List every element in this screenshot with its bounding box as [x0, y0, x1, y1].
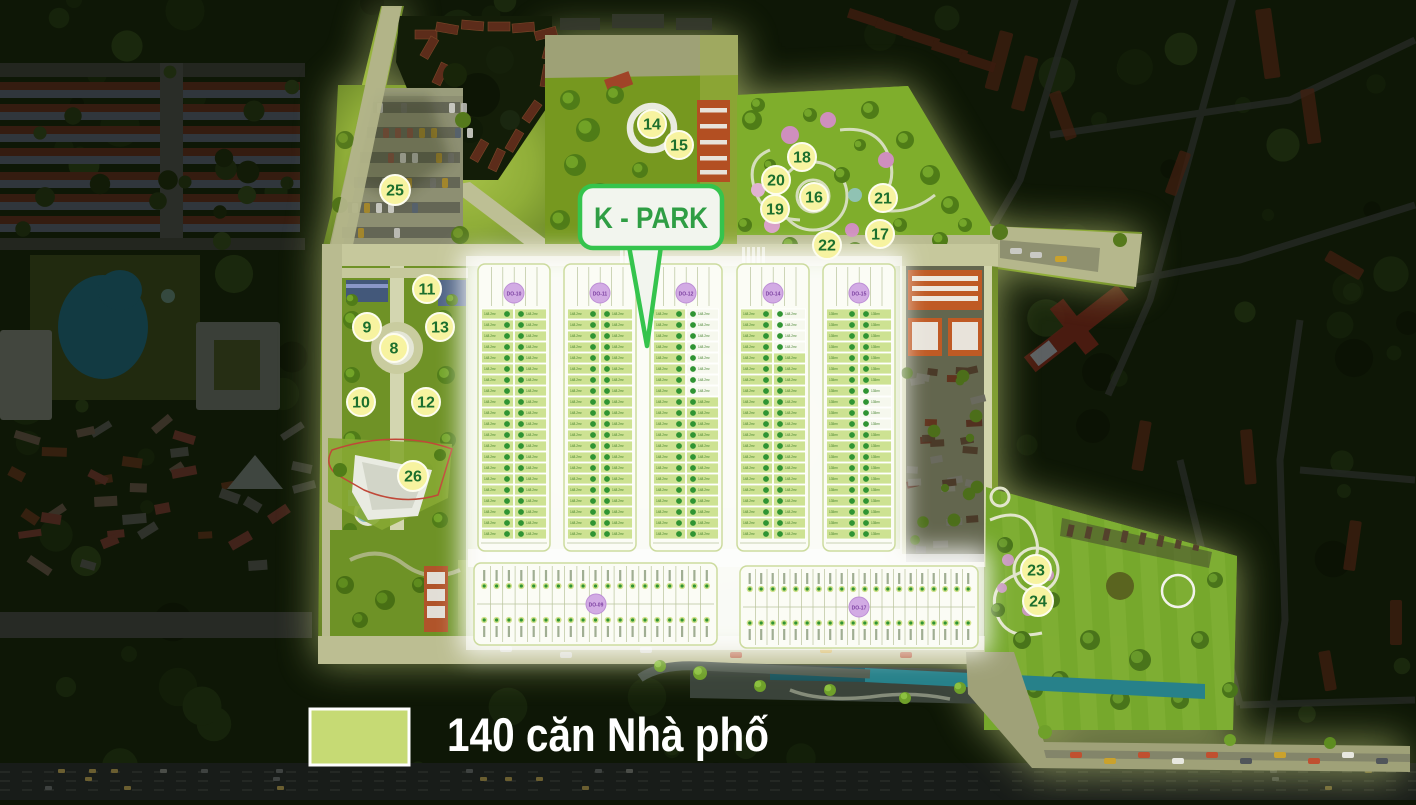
svg-text:148.2m²: 148.2m² — [612, 378, 624, 382]
svg-text:15: 15 — [670, 138, 688, 155]
svg-text:11: 11 — [419, 282, 436, 299]
svg-text:148.2m²: 148.2m² — [743, 400, 755, 404]
svg-text:135m²: 135m² — [871, 345, 880, 349]
svg-text:148.2m²: 148.2m² — [570, 323, 582, 327]
svg-text:148.2m²: 148.2m² — [526, 444, 538, 448]
svg-text:135m²: 135m² — [829, 323, 838, 327]
svg-text:148.2m²: 148.2m² — [612, 411, 624, 415]
svg-text:148.2m²: 148.2m² — [656, 444, 668, 448]
svg-text:135m²: 135m² — [871, 510, 880, 514]
svg-text:148.2m²: 148.2m² — [698, 532, 710, 536]
svg-text:148.2m²: 148.2m² — [612, 433, 624, 437]
svg-text:148.2m²: 148.2m² — [526, 433, 538, 437]
svg-text:148.2m²: 148.2m² — [785, 444, 797, 448]
svg-text:135m²: 135m² — [871, 444, 880, 448]
svg-text:148.2m²: 148.2m² — [570, 334, 582, 338]
svg-text:148.2m²: 148.2m² — [698, 422, 710, 426]
svg-text:148.2m²: 148.2m² — [698, 367, 710, 371]
svg-text:148.2m²: 148.2m² — [698, 312, 710, 316]
svg-text:148.2m²: 148.2m² — [570, 345, 582, 349]
svg-text:135m²: 135m² — [829, 312, 838, 316]
svg-text:148.2m²: 148.2m² — [484, 488, 496, 492]
svg-text:148.2m²: 148.2m² — [570, 378, 582, 382]
svg-text:135m²: 135m² — [829, 345, 838, 349]
svg-text:148.2m²: 148.2m² — [612, 334, 624, 338]
svg-text:148.2m²: 148.2m² — [743, 477, 755, 481]
svg-text:148.2m²: 148.2m² — [612, 455, 624, 459]
svg-text:DO-11: DO-11 — [593, 292, 608, 298]
svg-text:148.2m²: 148.2m² — [743, 444, 755, 448]
svg-text:135m²: 135m² — [871, 400, 880, 404]
svg-text:148.2m²: 148.2m² — [570, 521, 582, 525]
svg-text:DO-09: DO-09 — [589, 603, 604, 609]
svg-text:148.2m²: 148.2m² — [743, 466, 755, 470]
svg-text:135m²: 135m² — [829, 367, 838, 371]
svg-text:135m²: 135m² — [829, 510, 838, 514]
svg-text:148.2m²: 148.2m² — [743, 433, 755, 437]
svg-text:148.2m²: 148.2m² — [698, 345, 710, 349]
svg-text:148.2m²: 148.2m² — [785, 466, 797, 470]
svg-text:148.2m²: 148.2m² — [698, 356, 710, 360]
svg-text:148.2m²: 148.2m² — [570, 477, 582, 481]
svg-text:9: 9 — [363, 320, 372, 337]
svg-text:135m²: 135m² — [829, 422, 838, 426]
svg-text:DO-17: DO-17 — [852, 606, 867, 612]
svg-text:148.2m²: 148.2m² — [656, 488, 668, 492]
svg-text:148.2m²: 148.2m² — [698, 389, 710, 393]
svg-text:148.2m²: 148.2m² — [484, 400, 496, 404]
svg-text:148.2m²: 148.2m² — [484, 411, 496, 415]
svg-text:135m²: 135m² — [829, 433, 838, 437]
svg-text:148.2m²: 148.2m² — [743, 323, 755, 327]
svg-text:148.2m²: 148.2m² — [743, 499, 755, 503]
svg-text:148.2m²: 148.2m² — [526, 499, 538, 503]
svg-text:148.2m²: 148.2m² — [785, 356, 797, 360]
svg-text:148.2m²: 148.2m² — [656, 510, 668, 514]
svg-text:148.2m²: 148.2m² — [656, 422, 668, 426]
svg-text:DO-14: DO-14 — [766, 292, 781, 298]
svg-text:148.2m²: 148.2m² — [612, 400, 624, 404]
svg-text:148.2m²: 148.2m² — [612, 521, 624, 525]
svg-text:148.2m²: 148.2m² — [743, 411, 755, 415]
svg-text:148.2m²: 148.2m² — [484, 532, 496, 536]
svg-text:135m²: 135m² — [829, 499, 838, 503]
svg-text:148.2m²: 148.2m² — [698, 510, 710, 514]
svg-text:135m²: 135m² — [829, 411, 838, 415]
svg-text:148.2m²: 148.2m² — [484, 422, 496, 426]
svg-text:12: 12 — [417, 395, 435, 412]
svg-text:148.2m²: 148.2m² — [526, 532, 538, 536]
svg-text:148.2m²: 148.2m² — [698, 433, 710, 437]
svg-text:148.2m²: 148.2m² — [785, 312, 797, 316]
svg-text:135m²: 135m² — [829, 477, 838, 481]
svg-text:148.2m²: 148.2m² — [526, 510, 538, 514]
svg-text:148.2m²: 148.2m² — [743, 521, 755, 525]
svg-text:135m²: 135m² — [829, 466, 838, 470]
svg-text:148.2m²: 148.2m² — [526, 477, 538, 481]
svg-text:135m²: 135m² — [829, 521, 838, 525]
svg-text:148.2m²: 148.2m² — [526, 312, 538, 316]
svg-text:135m²: 135m² — [829, 488, 838, 492]
svg-text:135m²: 135m² — [829, 334, 838, 338]
svg-text:DO-12: DO-12 — [679, 292, 694, 298]
svg-text:135m²: 135m² — [871, 532, 880, 536]
svg-text:148.2m²: 148.2m² — [785, 455, 797, 459]
svg-text:148.2m²: 148.2m² — [785, 345, 797, 349]
svg-text:148.2m²: 148.2m² — [526, 488, 538, 492]
svg-text:148.2m²: 148.2m² — [526, 334, 538, 338]
svg-text:148.2m²: 148.2m² — [785, 488, 797, 492]
svg-text:148.2m²: 148.2m² — [570, 444, 582, 448]
svg-text:148.2m²: 148.2m² — [612, 477, 624, 481]
svg-text:135m²: 135m² — [871, 499, 880, 503]
svg-text:135m²: 135m² — [871, 433, 880, 437]
svg-text:148.2m²: 148.2m² — [698, 499, 710, 503]
svg-text:135m²: 135m² — [871, 411, 880, 415]
svg-text:148.2m²: 148.2m² — [743, 356, 755, 360]
svg-text:135m²: 135m² — [829, 378, 838, 382]
svg-text:148.2m²: 148.2m² — [743, 389, 755, 393]
svg-text:148.2m²: 148.2m² — [656, 323, 668, 327]
svg-text:135m²: 135m² — [829, 455, 838, 459]
svg-text:148.2m²: 148.2m² — [656, 521, 668, 525]
svg-text:148.2m²: 148.2m² — [484, 433, 496, 437]
svg-text:148.2m²: 148.2m² — [656, 345, 668, 349]
svg-text:148.2m²: 148.2m² — [656, 356, 668, 360]
svg-text:148.2m²: 148.2m² — [570, 356, 582, 360]
svg-text:14: 14 — [643, 117, 661, 134]
svg-text:148.2m²: 148.2m² — [612, 389, 624, 393]
svg-text:148.2m²: 148.2m² — [526, 367, 538, 371]
svg-text:148.2m²: 148.2m² — [526, 455, 538, 459]
svg-text:148.2m²: 148.2m² — [570, 312, 582, 316]
svg-text:148.2m²: 148.2m² — [743, 455, 755, 459]
svg-text:135m²: 135m² — [871, 334, 880, 338]
svg-text:148.2m²: 148.2m² — [785, 411, 797, 415]
svg-text:148.2m²: 148.2m² — [484, 510, 496, 514]
svg-text:148.2m²: 148.2m² — [570, 455, 582, 459]
svg-text:135m²: 135m² — [829, 444, 838, 448]
svg-text:135m²: 135m² — [829, 356, 838, 360]
svg-text:148.2m²: 148.2m² — [612, 422, 624, 426]
svg-text:148.2m²: 148.2m² — [484, 521, 496, 525]
svg-text:135m²: 135m² — [871, 378, 880, 382]
svg-text:148.2m²: 148.2m² — [526, 466, 538, 470]
svg-text:148.2m²: 148.2m² — [743, 510, 755, 514]
svg-text:148.2m²: 148.2m² — [785, 477, 797, 481]
svg-text:13: 13 — [431, 320, 449, 337]
svg-text:148.2m²: 148.2m² — [743, 422, 755, 426]
svg-text:148.2m²: 148.2m² — [698, 411, 710, 415]
svg-text:148.2m²: 148.2m² — [526, 345, 538, 349]
svg-text:148.2m²: 148.2m² — [484, 389, 496, 393]
svg-text:148.2m²: 148.2m² — [484, 345, 496, 349]
svg-text:135m²: 135m² — [871, 312, 880, 316]
svg-text:8: 8 — [390, 341, 399, 358]
svg-text:148.2m²: 148.2m² — [484, 378, 496, 382]
svg-text:19: 19 — [766, 202, 784, 219]
svg-text:148.2m²: 148.2m² — [612, 488, 624, 492]
svg-text:148.2m²: 148.2m² — [570, 532, 582, 536]
svg-text:148.2m²: 148.2m² — [785, 499, 797, 503]
svg-text:148.2m²: 148.2m² — [785, 510, 797, 514]
svg-text:16: 16 — [805, 190, 823, 207]
svg-text:148.2m²: 148.2m² — [570, 400, 582, 404]
svg-text:148.2m²: 148.2m² — [743, 312, 755, 316]
svg-text:135m²: 135m² — [829, 389, 838, 393]
svg-text:25: 25 — [386, 183, 404, 200]
svg-text:148.2m²: 148.2m² — [785, 367, 797, 371]
svg-text:135m²: 135m² — [871, 356, 880, 360]
svg-text:148.2m²: 148.2m² — [656, 499, 668, 503]
svg-text:148.2m²: 148.2m² — [570, 389, 582, 393]
svg-text:148.2m²: 148.2m² — [484, 367, 496, 371]
svg-text:23: 23 — [1027, 563, 1045, 580]
svg-text:148.2m²: 148.2m² — [612, 367, 624, 371]
svg-text:148.2m²: 148.2m² — [484, 466, 496, 470]
svg-text:148.2m²: 148.2m² — [785, 521, 797, 525]
svg-text:148.2m²: 148.2m² — [526, 323, 538, 327]
svg-text:148.2m²: 148.2m² — [785, 400, 797, 404]
svg-text:148.2m²: 148.2m² — [743, 532, 755, 536]
svg-text:148.2m²: 148.2m² — [785, 422, 797, 426]
svg-text:148.2m²: 148.2m² — [612, 356, 624, 360]
svg-text:148.2m²: 148.2m² — [570, 433, 582, 437]
svg-text:135m²: 135m² — [829, 532, 838, 536]
svg-text:148.2m²: 148.2m² — [785, 389, 797, 393]
svg-text:148.2m²: 148.2m² — [526, 422, 538, 426]
svg-text:148.2m²: 148.2m² — [743, 367, 755, 371]
svg-text:148.2m²: 148.2m² — [526, 521, 538, 525]
svg-text:135m²: 135m² — [871, 521, 880, 525]
svg-text:135m²: 135m² — [829, 400, 838, 404]
svg-text:148.2m²: 148.2m² — [484, 444, 496, 448]
svg-text:148.2m²: 148.2m² — [570, 488, 582, 492]
svg-text:DO-10: DO-10 — [507, 292, 522, 298]
svg-text:140 căn Nhà phố: 140 căn Nhà phố — [447, 708, 769, 761]
svg-text:148.2m²: 148.2m² — [484, 334, 496, 338]
svg-text:148.2m²: 148.2m² — [698, 323, 710, 327]
svg-text:148.2m²: 148.2m² — [612, 466, 624, 470]
svg-text:135m²: 135m² — [871, 367, 880, 371]
svg-text:148.2m²: 148.2m² — [484, 499, 496, 503]
svg-text:148.2m²: 148.2m² — [612, 323, 624, 327]
svg-text:148.2m²: 148.2m² — [698, 378, 710, 382]
svg-text:148.2m²: 148.2m² — [743, 334, 755, 338]
svg-text:148.2m²: 148.2m² — [526, 356, 538, 360]
svg-text:148.2m²: 148.2m² — [698, 488, 710, 492]
svg-text:148.2m²: 148.2m² — [785, 323, 797, 327]
svg-text:148.2m²: 148.2m² — [484, 477, 496, 481]
svg-text:148.2m²: 148.2m² — [656, 433, 668, 437]
svg-text:148.2m²: 148.2m² — [484, 356, 496, 360]
svg-text:148.2m²: 148.2m² — [656, 378, 668, 382]
svg-text:DO-15: DO-15 — [852, 292, 867, 298]
svg-text:148.2m²: 148.2m² — [570, 411, 582, 415]
svg-text:148.2m²: 148.2m² — [656, 389, 668, 393]
svg-text:148.2m²: 148.2m² — [484, 312, 496, 316]
svg-text:148.2m²: 148.2m² — [743, 488, 755, 492]
svg-text:K - PARK: K - PARK — [594, 202, 708, 235]
svg-text:148.2m²: 148.2m² — [570, 510, 582, 514]
svg-text:17: 17 — [871, 227, 889, 244]
svg-text:148.2m²: 148.2m² — [698, 444, 710, 448]
svg-text:148.2m²: 148.2m² — [656, 367, 668, 371]
svg-text:148.2m²: 148.2m² — [570, 466, 582, 470]
svg-text:148.2m²: 148.2m² — [612, 510, 624, 514]
svg-text:148.2m²: 148.2m² — [656, 400, 668, 404]
svg-text:148.2m²: 148.2m² — [656, 532, 668, 536]
svg-text:26: 26 — [404, 469, 422, 486]
svg-text:135m²: 135m² — [871, 466, 880, 470]
svg-text:148.2m²: 148.2m² — [698, 466, 710, 470]
svg-text:148.2m²: 148.2m² — [785, 433, 797, 437]
svg-text:148.2m²: 148.2m² — [785, 532, 797, 536]
svg-text:148.2m²: 148.2m² — [698, 521, 710, 525]
svg-text:148.2m²: 148.2m² — [656, 455, 668, 459]
svg-text:148.2m²: 148.2m² — [612, 345, 624, 349]
svg-text:148.2m²: 148.2m² — [785, 334, 797, 338]
svg-text:135m²: 135m² — [871, 323, 880, 327]
svg-text:148.2m²: 148.2m² — [526, 389, 538, 393]
svg-text:135m²: 135m² — [871, 455, 880, 459]
svg-text:148.2m²: 148.2m² — [570, 422, 582, 426]
svg-text:148.2m²: 148.2m² — [656, 312, 668, 316]
svg-text:148.2m²: 148.2m² — [526, 400, 538, 404]
svg-text:148.2m²: 148.2m² — [612, 499, 624, 503]
svg-text:135m²: 135m² — [871, 488, 880, 492]
svg-text:148.2m²: 148.2m² — [526, 378, 538, 382]
svg-text:22: 22 — [818, 238, 836, 255]
svg-text:21: 21 — [874, 191, 892, 208]
svg-text:148.2m²: 148.2m² — [785, 378, 797, 382]
svg-text:148.2m²: 148.2m² — [698, 455, 710, 459]
svg-text:148.2m²: 148.2m² — [484, 323, 496, 327]
svg-text:148.2m²: 148.2m² — [526, 411, 538, 415]
svg-text:20: 20 — [767, 173, 785, 190]
svg-text:148.2m²: 148.2m² — [656, 411, 668, 415]
svg-text:148.2m²: 148.2m² — [612, 444, 624, 448]
svg-text:10: 10 — [352, 395, 370, 412]
svg-text:148.2m²: 148.2m² — [612, 312, 624, 316]
svg-text:148.2m²: 148.2m² — [656, 477, 668, 481]
svg-text:148.2m²: 148.2m² — [656, 466, 668, 470]
svg-text:135m²: 135m² — [871, 389, 880, 393]
svg-text:148.2m²: 148.2m² — [698, 477, 710, 481]
svg-text:24: 24 — [1029, 594, 1047, 611]
svg-text:148.2m²: 148.2m² — [570, 499, 582, 503]
svg-text:18: 18 — [793, 150, 811, 167]
svg-text:148.2m²: 148.2m² — [656, 334, 668, 338]
svg-text:135m²: 135m² — [871, 477, 880, 481]
svg-text:148.2m²: 148.2m² — [612, 532, 624, 536]
svg-text:148.2m²: 148.2m² — [698, 400, 710, 404]
svg-text:148.2m²: 148.2m² — [570, 367, 582, 371]
svg-text:148.2m²: 148.2m² — [743, 378, 755, 382]
svg-text:135m²: 135m² — [871, 422, 880, 426]
svg-text:148.2m²: 148.2m² — [484, 455, 496, 459]
svg-text:148.2m²: 148.2m² — [698, 334, 710, 338]
svg-text:148.2m²: 148.2m² — [743, 345, 755, 349]
